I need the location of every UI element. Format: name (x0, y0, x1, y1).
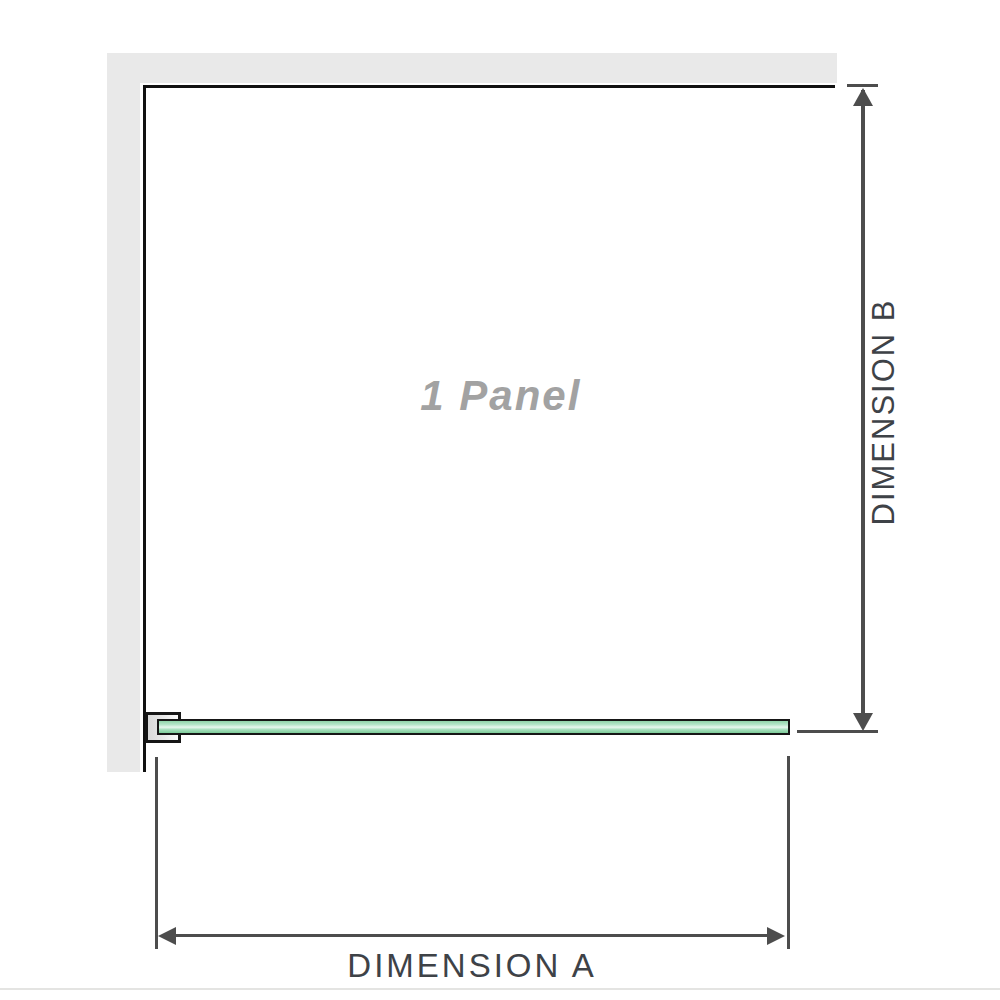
wall-segment-top (107, 53, 837, 83)
dimension-a-extension-right (787, 756, 790, 949)
panel-label: 1 Panel (420, 372, 581, 420)
dimension-b-line (861, 90, 865, 727)
arrow-up-icon (853, 88, 873, 106)
dimension-a-extension-left (155, 757, 158, 949)
wall-segment-left (107, 53, 140, 772)
dimension-a-label: DIMENSION A (156, 947, 788, 985)
dimension-b-tick-top (847, 84, 878, 87)
arrow-right-icon (767, 927, 785, 945)
glass-panel-bar (157, 719, 790, 735)
arrow-left-icon (158, 927, 176, 945)
dimension-a-line (170, 934, 776, 937)
dimension-b-label: DIMENSION B (866, 299, 902, 526)
shower-panel-dimension-diagram: 1 Panel DIMENSION B DIMENSION A (0, 0, 1000, 1000)
arrow-down-icon (853, 713, 873, 731)
page-bottom-divider (0, 988, 1000, 990)
panel-outline: 1 Panel (143, 85, 835, 772)
